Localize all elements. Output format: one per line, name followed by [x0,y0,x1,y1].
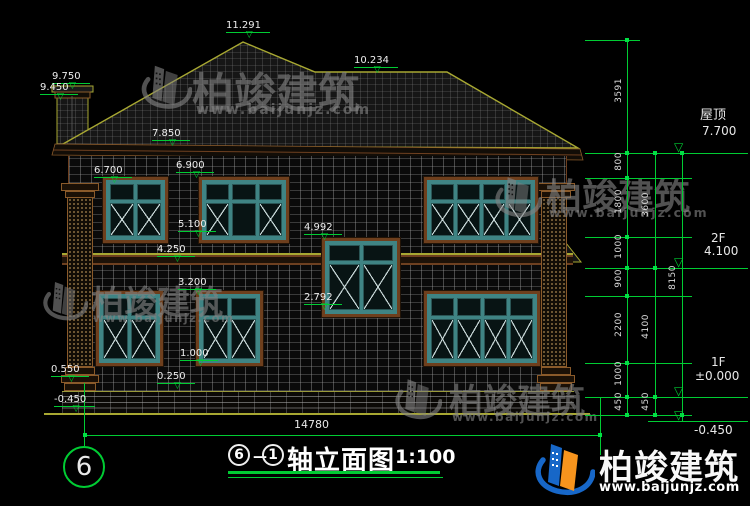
dimension-tick [653,395,657,399]
elevation-triangle-icon: ▽ [73,404,80,414]
dimension-tick [625,361,629,365]
annotation-text: -0.450 [694,424,733,437]
dimension-value: 1000 [614,361,624,386]
dimension-tick [625,395,629,399]
dimension-tick [625,235,629,239]
dimension-value: 3591 [614,78,624,103]
dimension-line [585,268,748,269]
dimension-value: 1000 [614,234,624,259]
elevation-triangle-icon: ▽ [195,229,202,239]
elevation-marker: 6.900▽ [176,160,214,173]
elevation-marker: 11.291▽ [226,20,270,33]
elevation-triangle-icon: ▽ [674,409,683,421]
dimension-line [585,178,692,179]
dimension-tick [625,38,629,42]
elevation-triangle-icon: ▽ [321,232,328,242]
title-underline [228,471,440,474]
elevation-triangle-icon: ▽ [174,254,181,264]
dimension-line [85,435,600,436]
dimension-line [682,153,683,421]
dimension-line [585,363,692,364]
elevation-triangle-icon: ▽ [321,302,328,312]
elevation-triangle-icon: ▽ [674,385,683,397]
title-axis-end: 1 [262,444,284,466]
annotation-text: 屋顶 [700,109,726,123]
elevation-marker: 3.200▽ [178,277,216,290]
elevation-triangle-icon: ▽ [195,287,202,297]
annotation-text: ±0.000 [695,370,739,383]
elevation-marker: 6.700▽ [94,165,132,178]
dimension-value: 1800 [614,189,624,214]
title-underline [228,477,443,478]
elevation-marker: 0.550▽ [51,364,89,377]
elevation-triangle-icon: ▽ [111,175,118,185]
dimension-line [648,421,748,422]
elevation-marker: 5.100▽ [178,219,216,232]
brand-url: www.baijunjz.com [599,480,740,495]
brand-logo-icon [531,436,595,500]
elevation-triangle-icon: ▽ [374,65,381,75]
dimension-tick [625,266,629,270]
elevation-triangle-icon: ▽ [197,358,204,368]
dimension-tick [653,266,657,270]
elevation-triangle-icon: ▽ [193,170,200,180]
elevation-marker: -0.450▽ [54,394,95,407]
elevation-triangle-icon: ▽ [57,92,64,102]
elevation-triangle-icon: ▽ [68,374,75,384]
dimension-value: 2200 [614,312,624,337]
elevation-triangle-icon: ▽ [174,381,181,391]
elevation-drawing-canvas: 柏竣建筑 www.baijunjz.com 柏竣建筑 www.baijunjz.… [0,0,750,506]
dimension-value: 450 [641,392,651,411]
elevation-triangle-icon: ▽ [169,138,176,148]
annotation-text: 1F [711,356,726,369]
dimension-tick [653,151,657,155]
dimension-tick [625,151,629,155]
dimension-line [585,153,748,154]
brand-block: 柏竣建筑 www.baijunjz.com [531,436,595,504]
annotation-text: 14780 [294,419,329,431]
dimension-value: 450 [614,392,624,411]
dimension-line [585,296,692,297]
elevation-triangle-icon: ▽ [674,256,683,268]
dimension-line [585,40,640,41]
dimension-tick [83,433,87,437]
title-axis-start: 6 [228,444,250,466]
annotation-text: 7.700 [702,125,736,138]
dimension-value: 800 [614,152,624,171]
elevation-marker: 2.792▽ [304,292,342,305]
elevation-marker: 9.450▽ [40,82,78,95]
elevation-marker: 4.250▽ [157,244,195,257]
dimension-value: 3600 [641,192,651,217]
dimension-line [585,237,692,238]
title-scale: 1:100 [395,446,455,468]
dimension-tick [625,176,629,180]
dimension-line [627,40,628,415]
annotation-text: 4.100 [704,245,738,258]
elevation-marker: 1.000▽ [180,348,218,361]
dimension-value: 900 [614,269,624,288]
elevation-marker: 10.234▽ [354,55,398,68]
dimension-value: 4100 [641,314,651,339]
elevation-marker: 4.992▽ [304,222,342,235]
elevation-triangle-icon: ▽ [246,30,253,40]
axis-bubble-6: 6 [63,446,105,488]
dimension-tick [653,413,657,417]
elevation-marker: 0.250▽ [157,371,195,384]
dimension-tick [625,294,629,298]
annotation-layer: 11.291▽10.234▽9.750▽9.450▽7.850▽6.900▽6.… [0,0,750,506]
dimension-line [585,397,748,398]
elevation-marker: 7.850▽ [152,128,190,141]
elevation-triangle-icon: ▽ [674,141,683,153]
dimension-line [655,153,656,415]
dimension-tick [598,433,602,437]
dimension-tick [625,413,629,417]
